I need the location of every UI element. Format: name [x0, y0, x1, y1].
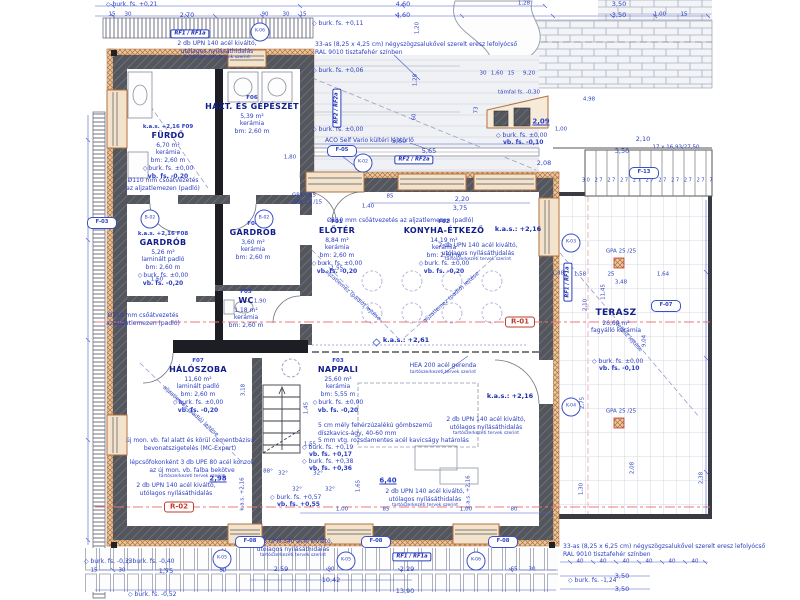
floor-plan-drawing: [0, 0, 800, 600]
floor-plan-canvas: k.a.s. +2,16 F09 FÜRDŐ 6,70 m² kerámia b…: [0, 0, 800, 600]
